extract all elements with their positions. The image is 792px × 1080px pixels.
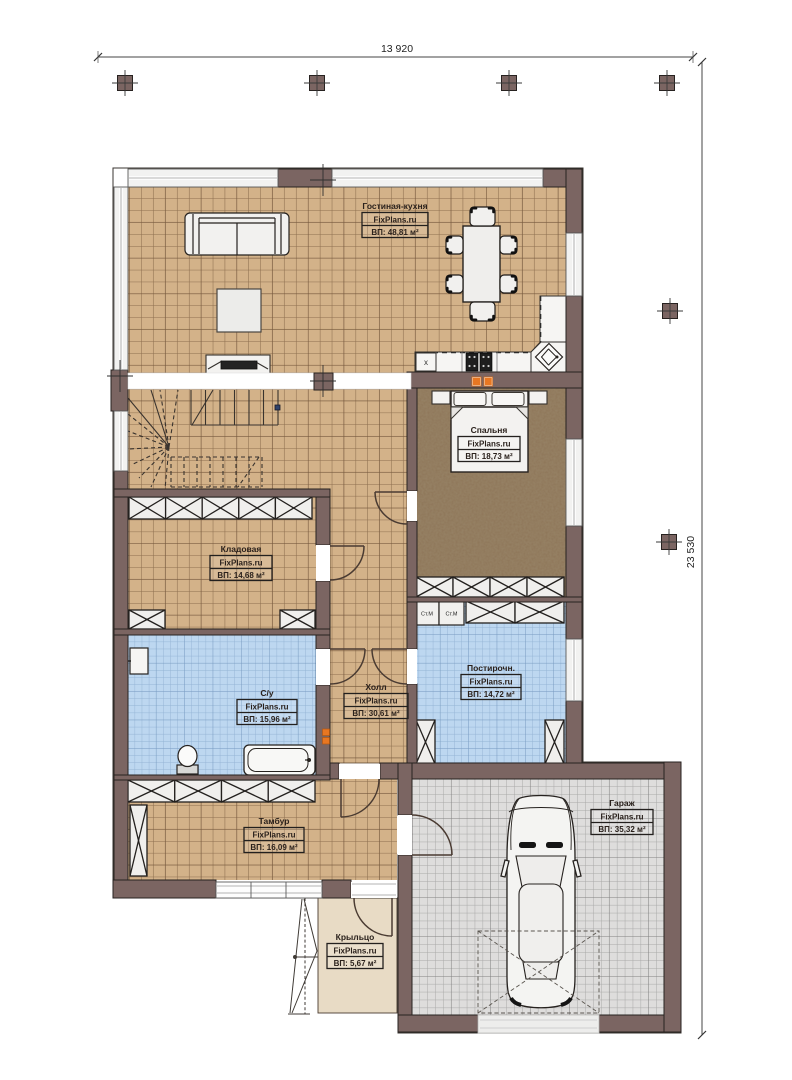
- svg-text:Ст.М: Ст.М: [446, 612, 458, 618]
- svg-text:ВП: 5,67 м²: ВП: 5,67 м²: [334, 959, 377, 968]
- svg-text:FixPlans.ru: FixPlans.ru: [467, 440, 510, 449]
- svg-text:Ст.М: Ст.М: [421, 612, 433, 618]
- svg-text:FixPlans.ru: FixPlans.ru: [219, 559, 262, 568]
- svg-text:FixPlans.ru: FixPlans.ru: [373, 216, 416, 225]
- svg-text:Гостиная-кухня: Гостиная-кухня: [362, 201, 427, 211]
- svg-text:FixPlans.ru: FixPlans.ru: [252, 831, 295, 840]
- svg-text:Гараж: Гараж: [609, 798, 635, 808]
- svg-text:FixPlans.ru: FixPlans.ru: [245, 703, 288, 712]
- svg-text:ВП: 30,61 м²: ВП: 30,61 м²: [352, 709, 400, 718]
- svg-text:23 530: 23 530: [685, 536, 697, 568]
- svg-text:FixPlans.ru: FixPlans.ru: [354, 697, 397, 706]
- svg-text:FixPlans.ru: FixPlans.ru: [469, 678, 512, 687]
- svg-text:ВП: 14,72 м²: ВП: 14,72 м²: [467, 690, 515, 699]
- svg-text:ВП: 18,73 м²: ВП: 18,73 м²: [465, 452, 513, 461]
- svg-text:FixPlans.ru: FixPlans.ru: [600, 813, 643, 822]
- svg-text:FixPlans.ru: FixPlans.ru: [333, 947, 376, 956]
- svg-text:Тамбур: Тамбур: [259, 816, 290, 826]
- svg-text:Холл: Холл: [365, 682, 386, 692]
- svg-text:ВП: 14,68 м²: ВП: 14,68 м²: [217, 571, 265, 580]
- svg-text:ВП: 35,32 м²: ВП: 35,32 м²: [598, 825, 646, 834]
- svg-text:С/у: С/у: [260, 688, 274, 698]
- svg-text:13 920: 13 920: [381, 43, 413, 55]
- svg-text:Спальня: Спальня: [471, 425, 508, 435]
- svg-text:Кладовая: Кладовая: [221, 544, 262, 554]
- svg-text:Крыльцо: Крыльцо: [336, 932, 375, 942]
- svg-text:ВП: 15,96 м²: ВП: 15,96 м²: [243, 715, 291, 724]
- svg-text:x: x: [424, 358, 428, 367]
- svg-text:ВП: 16,09 м²: ВП: 16,09 м²: [250, 843, 298, 852]
- svg-text:Постирочн.: Постирочн.: [467, 663, 515, 673]
- svg-text:ВП: 48,81 м²: ВП: 48,81 м²: [371, 228, 419, 237]
